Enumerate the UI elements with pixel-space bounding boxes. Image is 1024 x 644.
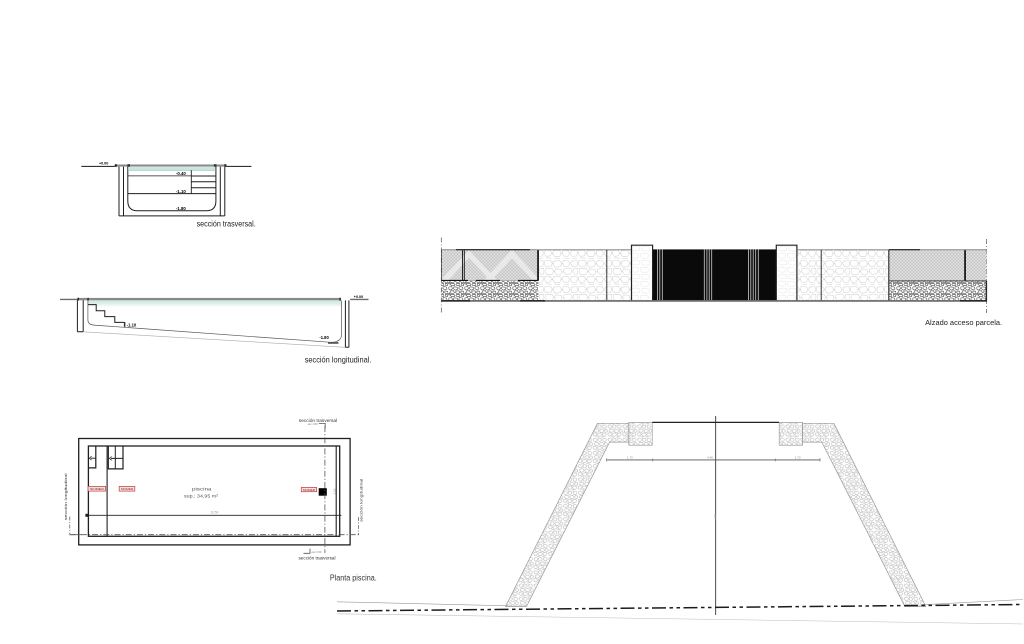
svg-text:sección longitudinal.: sección longitudinal. <box>305 356 372 365</box>
svg-text:2.50: 2.50 <box>713 513 717 519</box>
svg-text:SKIMER: SKIMER <box>121 487 134 491</box>
svg-text:3.50: 3.50 <box>332 488 336 494</box>
svg-text:-1.80: -1.80 <box>319 335 329 340</box>
svg-text:esc 1:50: esc 1:50 <box>308 422 318 426</box>
svg-text:sección longitudinal: sección longitudinal <box>63 473 68 520</box>
svg-text:piscina: piscina <box>192 487 212 492</box>
svg-text:1.70: 1.70 <box>795 456 801 460</box>
svg-text:esc 1:50: esc 1:50 <box>312 550 322 554</box>
svg-text:-1.10: -1.10 <box>127 323 137 328</box>
svg-text:sección trasversal: sección trasversal <box>299 555 336 560</box>
svg-text:1.73: 1.73 <box>627 456 633 460</box>
svg-text:-1.80: -1.80 <box>176 206 186 211</box>
svg-text:-0.40: -0.40 <box>176 171 186 176</box>
svg-text:Alzado acceso parcela.: Alzado acceso parcela. <box>925 318 1002 327</box>
svg-text:sección trasversal: sección trasversal <box>299 418 337 423</box>
svg-text:-1.10: -1.10 <box>176 189 186 194</box>
svg-text:+0.00: +0.00 <box>99 162 108 166</box>
svg-text:SKIMER: SKIMER <box>90 487 105 491</box>
svg-text:10.50: 10.50 <box>210 510 218 514</box>
svg-text:Planta piscina.: Planta piscina. <box>330 574 377 583</box>
svg-text:sección trasversal.: sección trasversal. <box>197 220 256 229</box>
svg-text:sección longitudinal: sección longitudinal <box>358 479 363 522</box>
svg-text:+0.00: +0.00 <box>354 295 363 299</box>
svg-text:sup.: 34,95 m²: sup.: 34,95 m² <box>184 493 219 498</box>
svg-text:SKIMER: SKIMER <box>303 488 316 492</box>
svg-text:4.46: 4.46 <box>707 456 713 460</box>
